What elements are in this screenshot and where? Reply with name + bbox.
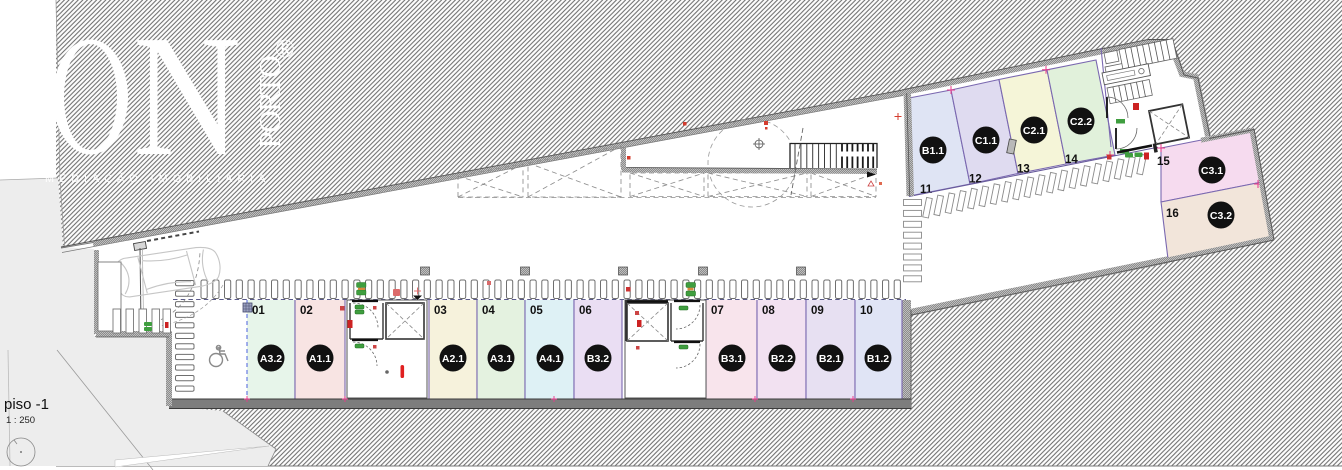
- svg-text:01: 01: [252, 305, 265, 317]
- svg-text:C3.1: C3.1: [1201, 165, 1223, 177]
- svg-text:®: ®: [275, 34, 295, 63]
- svg-text:N: N: [133, 0, 241, 193]
- svg-text:PORTO: PORTO: [252, 56, 287, 149]
- svg-text:10: 10: [860, 305, 873, 317]
- svg-text:09: 09: [811, 305, 824, 317]
- svg-text:16: 16: [1166, 208, 1179, 220]
- svg-text:A2.1: A2.1: [442, 353, 464, 365]
- svg-text:03: 03: [434, 305, 447, 317]
- svg-text:B3.2: B3.2: [587, 353, 609, 365]
- svg-text:B1.1: B1.1: [922, 145, 944, 157]
- svg-text:B2.2: B2.2: [771, 353, 793, 365]
- svg-text:C3.2: C3.2: [1210, 210, 1232, 222]
- svg-text:08: 08: [762, 305, 775, 317]
- svg-text:04: 04: [482, 305, 495, 317]
- svg-text:07: 07: [711, 305, 724, 317]
- svg-text:A1.1: A1.1: [309, 353, 331, 365]
- svg-text:02: 02: [300, 305, 313, 317]
- svg-text:1 : 250: 1 : 250: [6, 415, 35, 426]
- svg-text:piso -1: piso -1: [4, 396, 49, 413]
- svg-text:A3.2: A3.2: [260, 353, 282, 365]
- svg-text:B1.2: B1.2: [867, 353, 889, 365]
- svg-text:B3.1: B3.1: [721, 353, 743, 365]
- svg-text:15: 15: [1157, 156, 1170, 168]
- svg-text:C2.1: C2.1: [1023, 125, 1045, 137]
- svg-text:06: 06: [579, 305, 592, 317]
- svg-text:C1.1: C1.1: [975, 135, 997, 147]
- svg-text:MEDIAÇÃO IMOBILIÁRIA: MEDIAÇÃO IMOBILIÁRIA: [45, 172, 270, 185]
- svg-text:B2.1: B2.1: [819, 353, 841, 365]
- svg-text:A4.1: A4.1: [539, 353, 561, 365]
- svg-text:05: 05: [530, 305, 543, 317]
- svg-text:A3.1: A3.1: [490, 353, 512, 365]
- svg-text:C2.2: C2.2: [1070, 116, 1092, 128]
